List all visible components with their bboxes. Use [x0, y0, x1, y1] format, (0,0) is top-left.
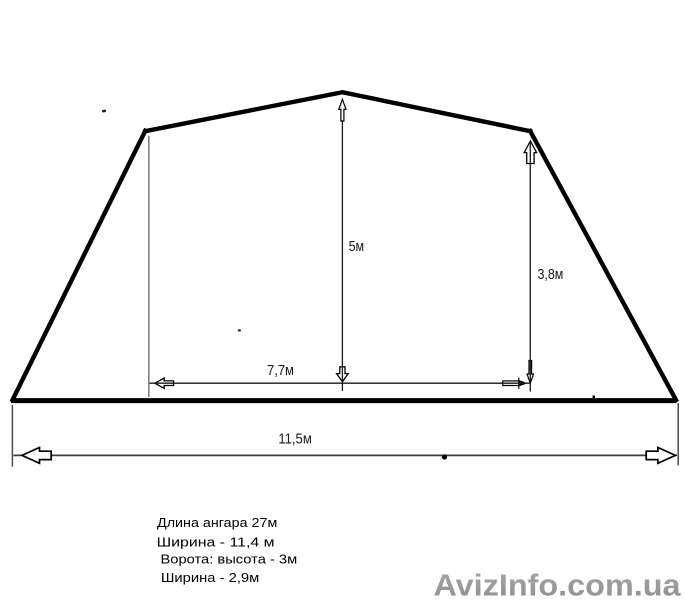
svg-text:Ширина - 11,4 м: Ширина - 11,4 м: [157, 535, 275, 550]
svg-text:Ширина - 2,9м: Ширина - 2,9м: [161, 570, 259, 585]
svg-text:Ворота: высота - 3м: Ворота: высота - 3м: [161, 551, 298, 566]
svg-text:5м: 5м: [349, 238, 365, 255]
svg-text:11,5м: 11,5м: [278, 431, 311, 448]
svg-text:AvizInfo.com.ua: AvizInfo.com.ua: [434, 568, 682, 600]
svg-text:7,7м: 7,7м: [267, 362, 294, 379]
svg-text:3,8м: 3,8м: [538, 266, 564, 283]
svg-text:Длина ангара 27м: Длина ангара 27м: [157, 515, 277, 530]
